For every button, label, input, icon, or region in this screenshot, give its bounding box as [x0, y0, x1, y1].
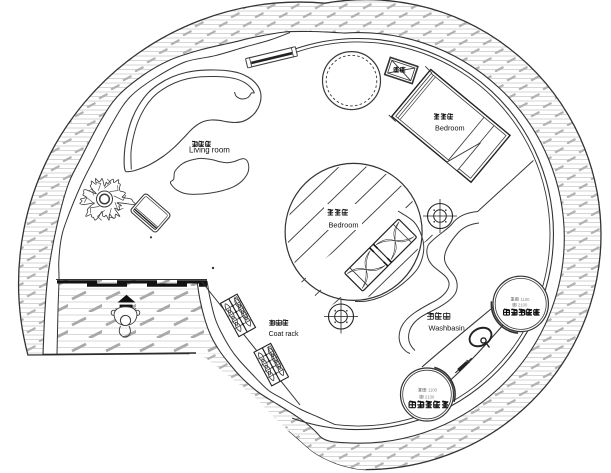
svg-text:Bedroom: Bedroom — [435, 124, 465, 133]
svg-text:Coat rack: Coat rack — [269, 331, 299, 338]
svg-text:2100: 2100 — [425, 394, 435, 399]
svg-text:Bedroom: Bedroom — [329, 221, 359, 230]
svg-text:1100: 1100 — [428, 388, 438, 393]
svg-text:2100: 2100 — [518, 303, 528, 308]
svg-text:Living room: Living room — [189, 146, 230, 155]
svg-text:Washbasin: Washbasin — [429, 324, 465, 333]
svg-text:1100: 1100 — [521, 297, 531, 302]
